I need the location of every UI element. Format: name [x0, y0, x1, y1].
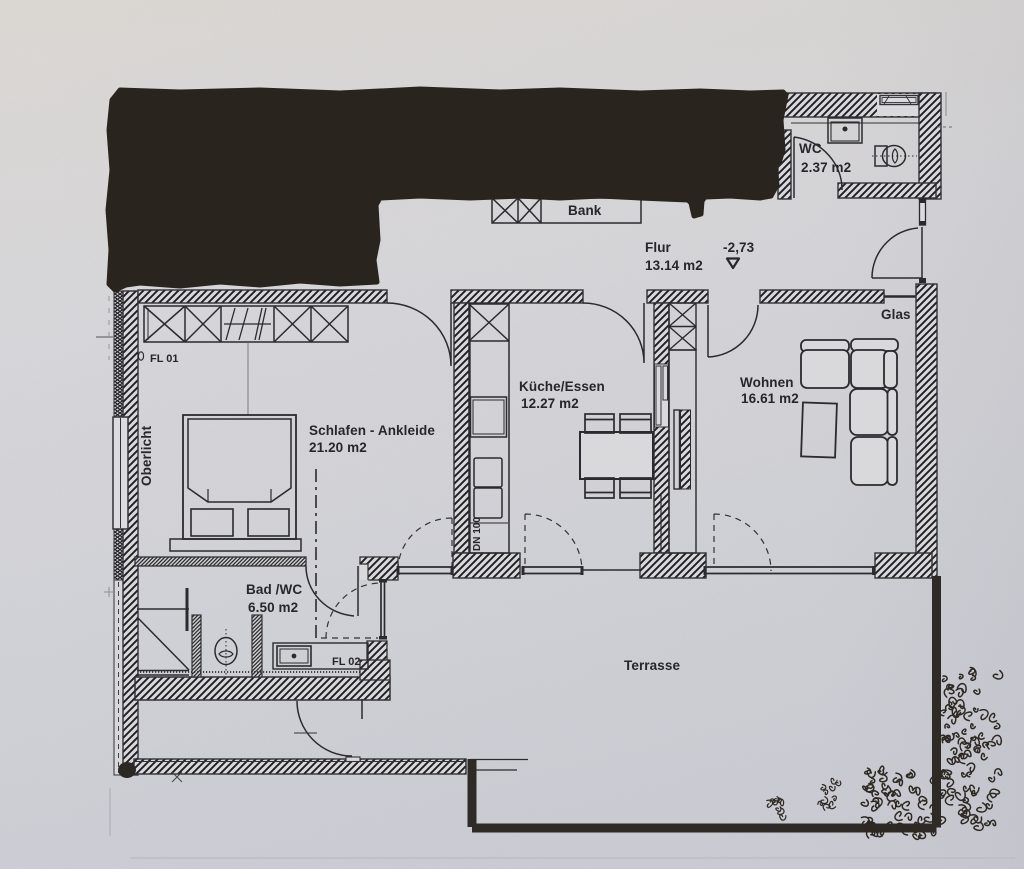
svg-text:-2,73: -2,73	[723, 240, 755, 255]
svg-text:Terrasse: Terrasse	[624, 658, 680, 673]
svg-text:Oberlicht: Oberlicht	[139, 425, 154, 486]
svg-text:FL 02: FL 02	[332, 656, 361, 668]
svg-text:16.61 m2: 16.61 m2	[741, 391, 799, 406]
svg-text:WC: WC	[799, 141, 822, 156]
svg-text:2.37 m2: 2.37 m2	[801, 160, 851, 175]
svg-text:12.27 m2: 12.27 m2	[521, 396, 579, 411]
svg-text:Bank: Bank	[568, 203, 602, 218]
svg-text:21.20 m2: 21.20 m2	[309, 440, 367, 455]
svg-text:DN 100: DN 100	[472, 517, 483, 551]
svg-text:Glas: Glas	[881, 307, 911, 322]
svg-text:Küche/Essen: Küche/Essen	[519, 379, 605, 394]
svg-text:Wohnen: Wohnen	[740, 375, 794, 390]
svg-text:Schlafen - Ankleide: Schlafen - Ankleide	[309, 423, 435, 438]
svg-text:Flur: Flur	[645, 240, 672, 255]
svg-text:Bad /WC: Bad /WC	[246, 582, 302, 597]
svg-text:13.14 m2: 13.14 m2	[645, 258, 703, 273]
svg-text:6.50 m2: 6.50 m2	[248, 600, 298, 615]
svg-text:FL 01: FL 01	[150, 353, 179, 365]
